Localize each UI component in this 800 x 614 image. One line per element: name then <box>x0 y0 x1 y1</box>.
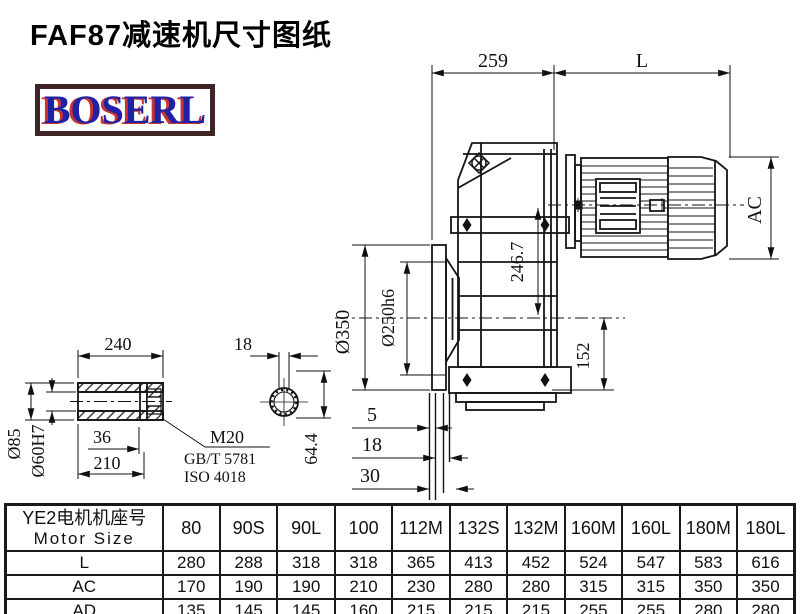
table-cell: 350 <box>737 575 794 599</box>
dim-5: 5 <box>367 404 377 426</box>
motor-outline <box>566 155 727 259</box>
table-cell: 547 <box>622 551 679 575</box>
table-header-cell: 180M <box>680 505 737 552</box>
table-header-cell: 90S <box>220 505 277 552</box>
table-cell: 190 <box>277 575 334 599</box>
table-header-row: YE2电机机座号Motor Size8090S90L100112M132S132… <box>6 505 795 552</box>
table-cell: 318 <box>277 551 334 575</box>
table-header-cell: 132S <box>450 505 507 552</box>
table-cell: 365 <box>392 551 449 575</box>
dim-18-bottom: 18 <box>362 434 382 456</box>
table-cell: 288 <box>220 551 277 575</box>
table-row-label: AD <box>6 599 163 614</box>
table-cell: 145 <box>220 599 277 614</box>
bolt-symbols <box>463 218 550 387</box>
table-row-label: L <box>6 551 163 575</box>
boserl-logo-text: BOSERL <box>44 90 206 130</box>
table-cell: 255 <box>622 599 679 614</box>
hollow-shaft-lines <box>430 393 450 500</box>
note-thread: M20 <box>210 427 244 447</box>
table-row: AD135145145160215215215255255280280 <box>6 599 795 614</box>
table-header-cell: 132M <box>507 505 564 552</box>
dim-64-4: 64.4 <box>301 433 321 465</box>
dim-85: Ø85 <box>4 429 24 460</box>
table-cell: 350 <box>680 575 737 599</box>
dim-60h7: Ø60H7 <box>28 425 48 478</box>
table-cell: 215 <box>450 599 507 614</box>
table-cell: 160 <box>335 599 392 614</box>
dim-30: 30 <box>360 465 380 487</box>
table-cell: 616 <box>737 551 794 575</box>
table-row-label: AC <box>6 575 163 599</box>
table-header-cell: 112M <box>392 505 449 552</box>
table-header-cell: 160L <box>622 505 679 552</box>
table-cell: 230 <box>392 575 449 599</box>
table-header-motor-size: YE2电机机座号Motor Size <box>6 505 163 552</box>
table-cell: 255 <box>565 599 622 614</box>
motor-size-table: YE2电机机座号Motor Size8090S90L100112M132S132… <box>4 503 796 614</box>
table-header-cell: 90L <box>277 505 334 552</box>
table-cell: 315 <box>622 575 679 599</box>
table-cell: 280 <box>163 551 220 575</box>
dim-spigot: Ø250h6 <box>378 289 398 347</box>
table-row: L280288318318365413452524547583616 <box>6 551 795 575</box>
dim-L: L <box>636 50 648 72</box>
table-cell: 215 <box>392 599 449 614</box>
table-row: AC170190190210230280280315315350350 <box>6 575 795 599</box>
table-cell: 524 <box>565 551 622 575</box>
table-cell: 280 <box>737 599 794 614</box>
page-title: FAF87减速机尺寸图纸 <box>30 12 332 54</box>
table-cell: 413 <box>450 551 507 575</box>
note-standard-iso: ISO 4018 <box>184 469 246 486</box>
table-cell: 318 <box>335 551 392 575</box>
note-standard-gbt: GB/T 5781 <box>184 451 256 468</box>
dim-152: 152 <box>573 343 593 370</box>
dim-259: 259 <box>478 50 508 72</box>
table-cell: 135 <box>163 599 220 614</box>
table-cell: 215 <box>507 599 564 614</box>
drawing-page: FAF87减速机尺寸图纸 BOSERL <box>0 0 800 614</box>
table-cell: 170 <box>163 575 220 599</box>
table-cell: 280 <box>450 575 507 599</box>
eyebolt-icon <box>469 153 489 173</box>
table-cell: 583 <box>680 551 737 575</box>
output-flange <box>432 245 459 390</box>
shaft-end-view <box>260 378 308 426</box>
table-cell: 210 <box>335 575 392 599</box>
dimension-lines <box>352 65 779 489</box>
table-header-cell: 180L <box>737 505 794 552</box>
dim-18-key: 18 <box>234 334 252 354</box>
table-cell: 190 <box>220 575 277 599</box>
table-header-cell: 80 <box>163 505 220 552</box>
dimension-drawing: 259 L AC 246.7 Ø350 Ø250h6 152 5 18 30 2… <box>0 0 800 505</box>
dim-flange-od: Ø350 <box>332 310 354 354</box>
table-cell: 280 <box>680 599 737 614</box>
table-cell: 280 <box>507 575 564 599</box>
dim-36: 36 <box>93 427 111 447</box>
table-cell: 145 <box>277 599 334 614</box>
boserl-logo: BOSERL <box>35 84 215 136</box>
dim-210: 210 <box>94 453 121 473</box>
dim-246-7: 246.7 <box>507 242 527 283</box>
table-header-cell: 100 <box>335 505 392 552</box>
dim-AC: AC <box>744 196 766 224</box>
table-cell: 315 <box>565 575 622 599</box>
table-header-cell: 160M <box>565 505 622 552</box>
table-cell: 452 <box>507 551 564 575</box>
dim-240: 240 <box>105 334 132 354</box>
